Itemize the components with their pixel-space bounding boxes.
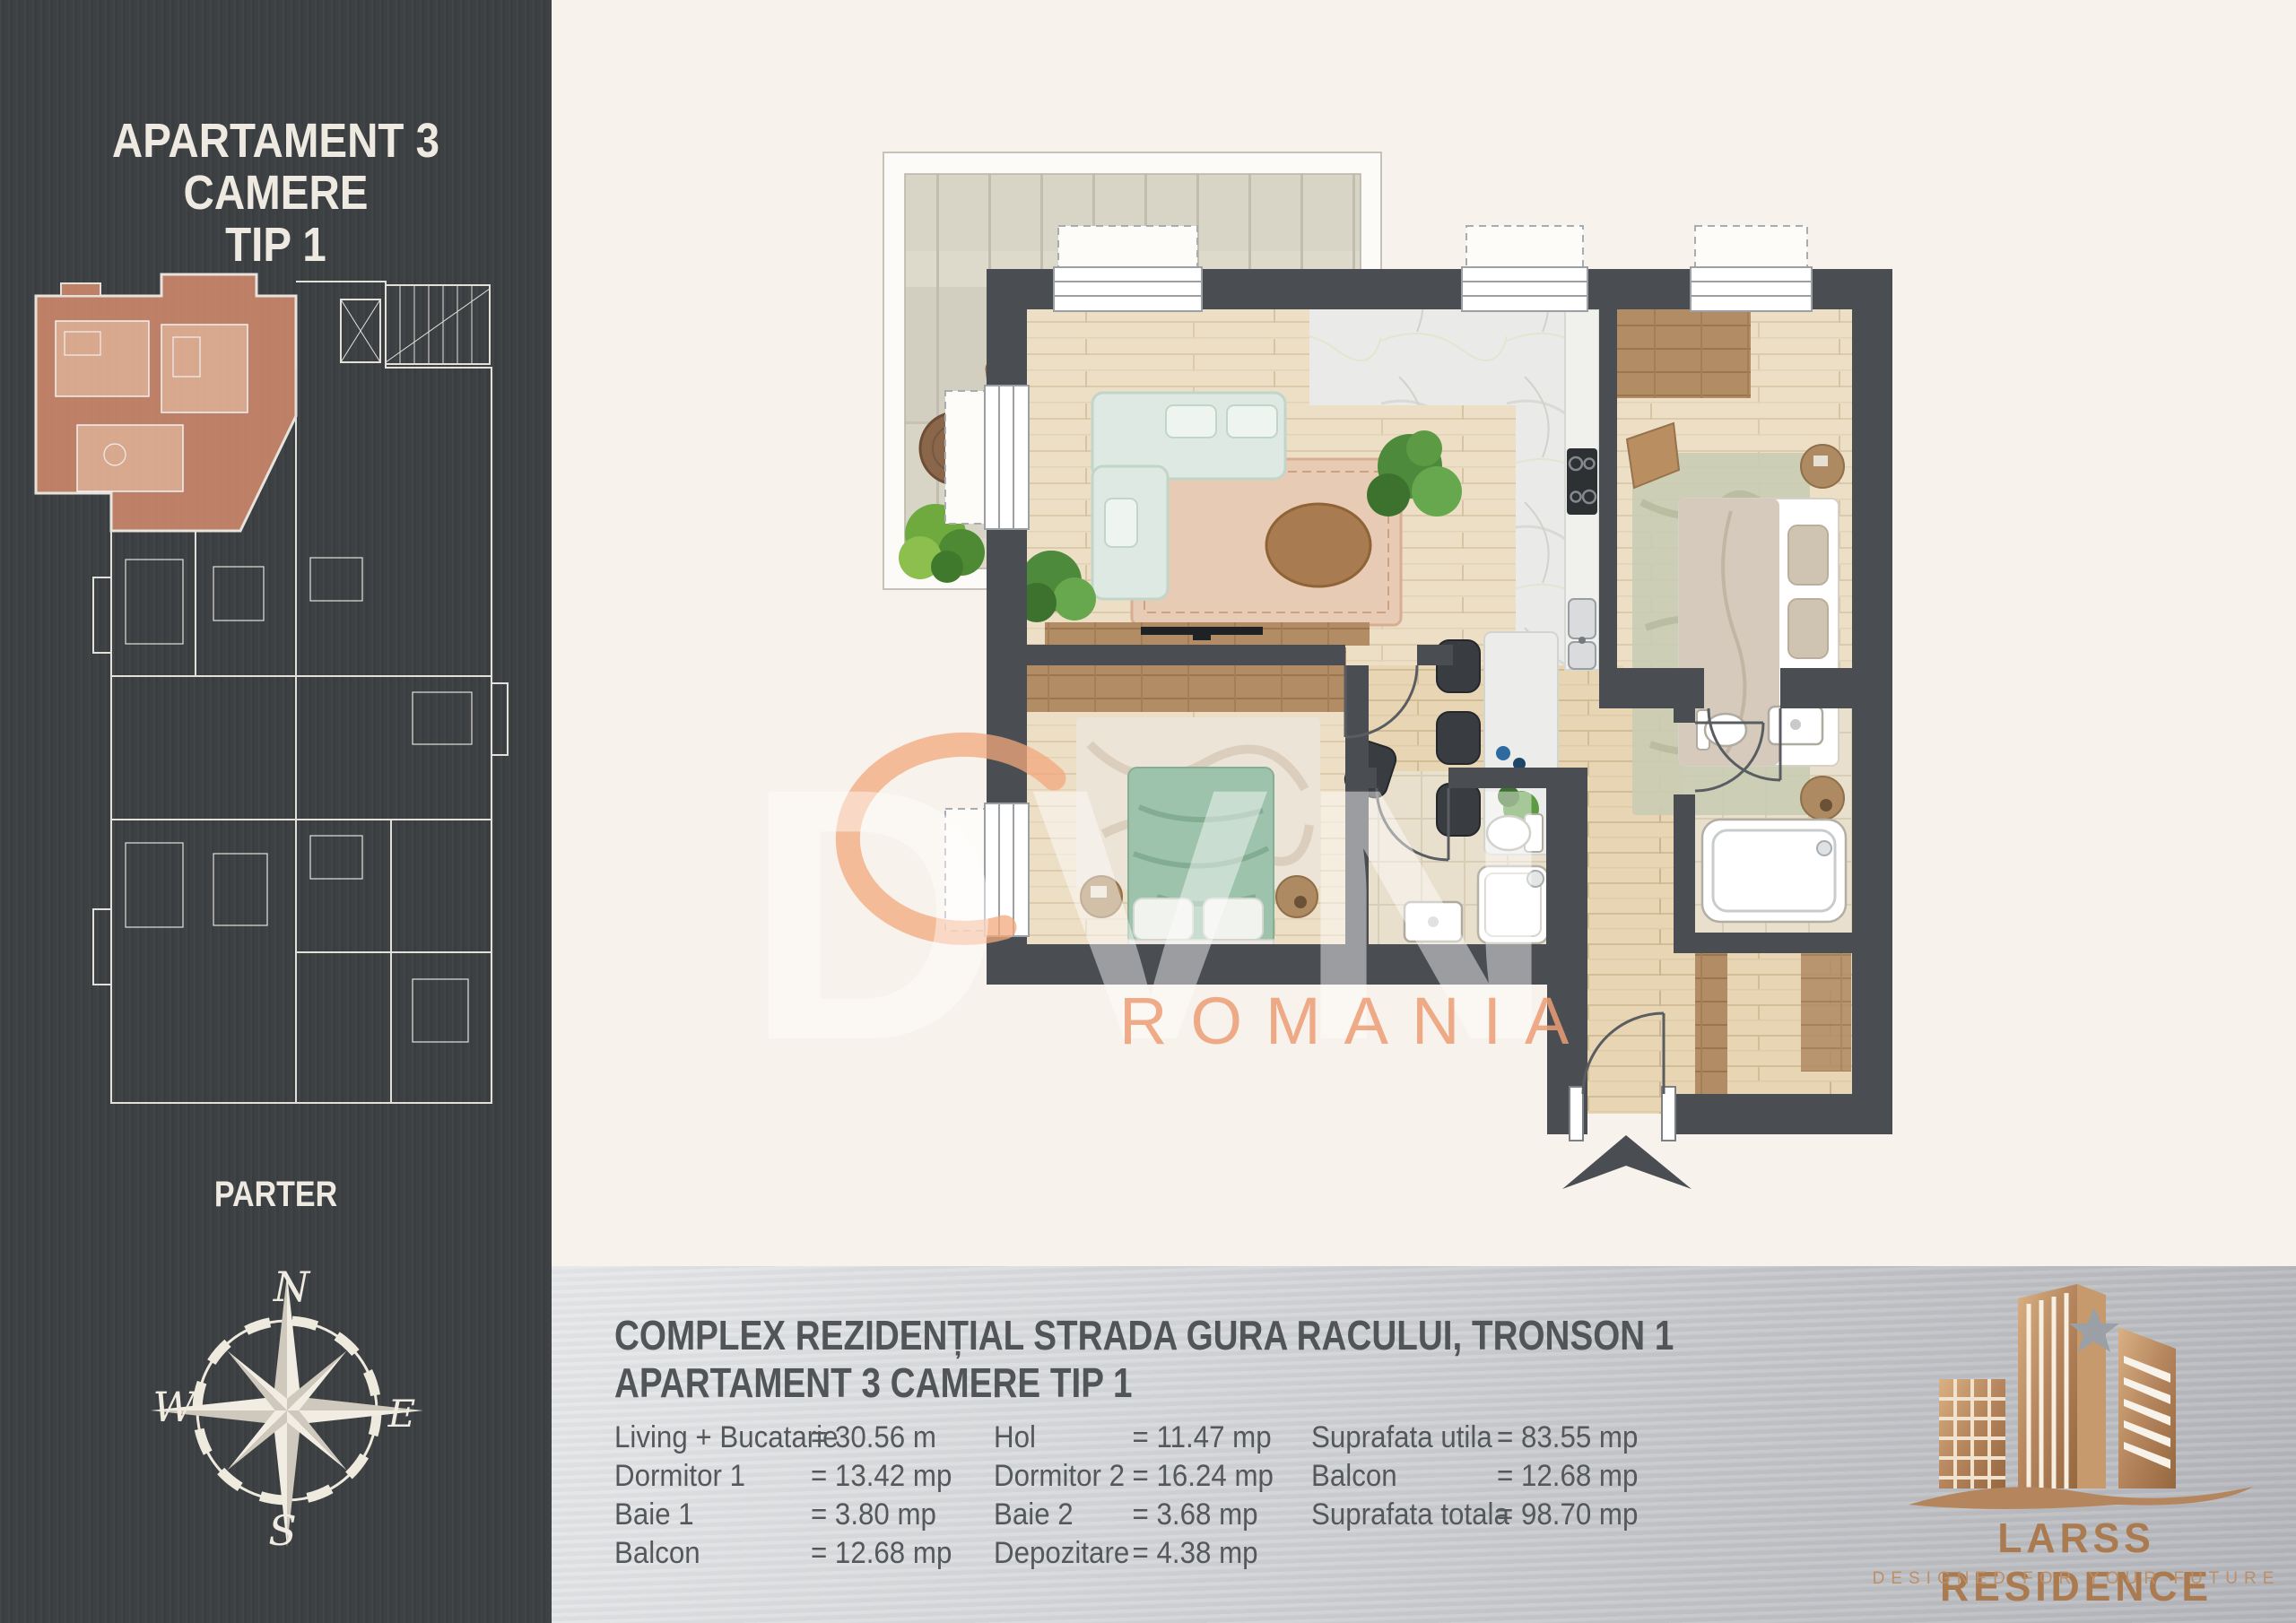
area-label: Suprafata totala [1311, 1497, 1497, 1532]
area-value: = 12.68 mp [811, 1536, 952, 1571]
area-label: Baie 1 [614, 1497, 811, 1532]
wall-kitchen-bedroom1 [1599, 289, 1617, 708]
area-label: Hol [994, 1420, 1133, 1455]
area-label: Balcon [614, 1536, 811, 1571]
area-value: = 13.42 mp [811, 1459, 952, 1494]
area-table-column-1: Living + Bucatarie= 30.56 m Dormitor 1= … [614, 1419, 981, 1573]
entrance-arrow-icon [1562, 1135, 1692, 1189]
watermark-country: ROMANIA [1119, 983, 1592, 1059]
area-value: = 98.70 mp [1497, 1497, 1638, 1532]
area-table-column-3: Suprafata utila= 83.55 mp Balcon= 12.68 … [1311, 1419, 1666, 1534]
cooktop [1567, 448, 1597, 515]
area-value: = 12.68 mp [1497, 1459, 1638, 1494]
area-label: Dormitor 2 [994, 1459, 1133, 1494]
area-label: Dormitor 1 [614, 1459, 811, 1494]
area-table-column-2: Hol= 11.47 mp Dormitor 2= 16.24 mp Baie … [994, 1419, 1298, 1573]
wall-right [1852, 269, 1892, 1134]
project-title-line1: COMPLEX REZIDENȚIAL STRADA GURA RACULUI,… [614, 1311, 1669, 1359]
area-label: Depozitare [994, 1536, 1133, 1571]
living-side-window [945, 386, 1029, 529]
compass-west: W [152, 1383, 198, 1431]
highlighted-apartment [36, 274, 296, 531]
logo-buildings-icon [1892, 1273, 2269, 1515]
wall-living-bedroom2 [1417, 645, 1453, 665]
area-row: Dormitor 2= 16.24 mp [994, 1457, 1274, 1496]
area-label: Balcon [1311, 1459, 1497, 1494]
bathtub [1702, 820, 1846, 922]
area-label: Living + Bucatarie [614, 1420, 811, 1455]
area-row: Living + Bucatarie= 30.56 m [614, 1419, 952, 1457]
apartment-title-line1: APARTAMENT 3 CAMERE [33, 115, 518, 219]
area-row: Suprafata totala= 98.70 mp [1311, 1496, 1638, 1534]
area-row: Baie 2= 3.68 mp [994, 1496, 1274, 1534]
compass-east: E [387, 1392, 416, 1436]
wall-bedroom1-bottom [1780, 668, 1852, 708]
compass-north: N [273, 1263, 311, 1311]
bedroom1-window [1691, 226, 1812, 311]
area-value: = 3.68 mp [1133, 1497, 1258, 1532]
tv [1141, 627, 1263, 635]
kitchen-window [1462, 226, 1587, 311]
floor-label: PARTER [41, 1175, 510, 1215]
nightstand [1801, 777, 1844, 820]
logo-tagline: DESIGNED FOR YOUR FUTURE [1857, 1569, 2296, 1589]
area-value: = 16.24 mp [1133, 1459, 1274, 1494]
compass-rose-icon: N E S W [139, 1263, 435, 1558]
area-value: = 30.56 m [811, 1420, 936, 1455]
apartment-title: APARTAMENT 3 CAMERE TIP 1 [33, 115, 518, 271]
area-value: = 83.55 mp [1497, 1420, 1638, 1455]
compass-south: S [268, 1506, 297, 1555]
area-row: Depozitare= 4.38 mp [994, 1534, 1274, 1573]
logo-name: LARSS RESIDENCE [1863, 1514, 2289, 1610]
pillow [1788, 599, 1828, 658]
area-row: Balcon= 12.68 mp [1311, 1457, 1638, 1496]
wall-bath2-left [1674, 794, 1695, 953]
wall-bottom-right [1664, 1094, 1892, 1134]
building-overview-miniplan [25, 262, 527, 1132]
kitchen-sink [1569, 599, 1596, 669]
logo-swoosh [1909, 1487, 2253, 1509]
area-value: = 4.38 mp [1133, 1536, 1258, 1571]
wall-bath2-bottom [1674, 933, 1852, 953]
terrace-door-window [1054, 226, 1202, 311]
sidebar: APARTAMENT 3 CAMERE TIP 1 [0, 0, 552, 1623]
area-row: Balcon= 12.68 mp [614, 1534, 952, 1573]
flyer-canvas: DVN ROMANIA APARTAMENT 3 CAMERE TIP 1 [0, 0, 2296, 1623]
area-value: = 3.80 mp [811, 1497, 936, 1532]
coffee-table [1266, 504, 1370, 586]
area-row: Dormitor 1= 13.42 mp [614, 1457, 952, 1496]
area-value: = 11.47 mp [1133, 1420, 1272, 1455]
area-row: Baie 1= 3.80 mp [614, 1496, 952, 1534]
area-label: Baie 2 [994, 1497, 1133, 1532]
area-row: Hol= 11.47 mp [994, 1419, 1274, 1457]
bath2-sink [1769, 707, 1822, 744]
project-title-line2: APARTAMENT 3 CAMERE TIP 1 [614, 1358, 1669, 1407]
area-label: Suprafata utila [1311, 1420, 1497, 1455]
area-row: Suprafata utila= 83.55 mp [1311, 1419, 1638, 1457]
pillow [1788, 525, 1828, 585]
